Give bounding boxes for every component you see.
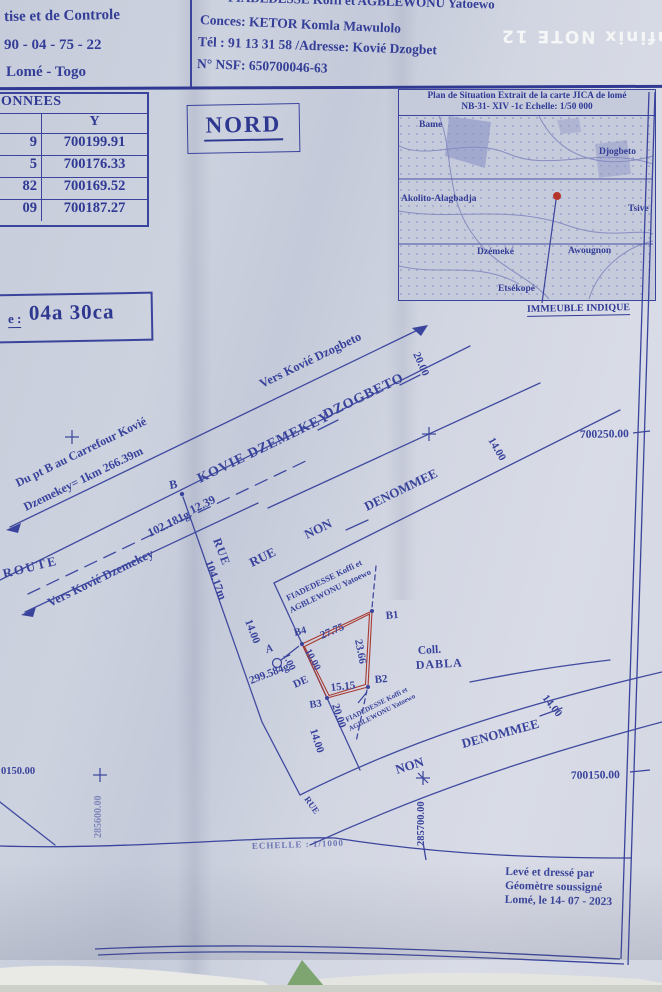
label-denommee-lower: DENOMMEE	[460, 716, 541, 751]
label-grid-east-right: 285700.00	[416, 801, 427, 846]
label-rue-small: RUE	[302, 794, 321, 815]
label-grid-north-left: 0150.00	[1, 766, 35, 777]
label-corner-b4: B4	[293, 625, 308, 639]
label-angle-b: 102.181g	[145, 507, 192, 539]
label-non-lower: NON	[393, 754, 426, 777]
label-width-14-b: 14.00	[485, 436, 508, 464]
label-rue-upper: RUE	[247, 544, 278, 570]
label-coll: Coll.	[418, 644, 442, 657]
location-marker-icon	[553, 192, 561, 200]
label-corner-b2: B2	[374, 673, 388, 686]
label-width-14-d: 14.00	[540, 692, 565, 719]
label-width-20-b: 20.00	[329, 702, 348, 730]
label-side-10-00: 10.00	[302, 647, 322, 672]
grid-cross-icon	[65, 427, 436, 785]
surveyor-note-line3: Lomé, le 14- 07 - 2023	[505, 893, 613, 909]
label-scale: ECHELLE : 1/1000	[252, 838, 344, 851]
label-point-a: A	[263, 642, 275, 656]
label-angle-a: 299.584g	[248, 661, 291, 687]
label-grid-east-left: 285600.00	[93, 796, 104, 839]
label-non-upper: NON	[302, 515, 335, 541]
label-point-b: B	[168, 477, 178, 492]
label-width-14-a: 14.00	[242, 618, 262, 646]
label-vers-dzemekey: Vers Kovié Dzemekey	[45, 546, 156, 610]
plan-drawing: Vers Kovié Dzogbeto KOVIE DZEMEKEY DZOGB…	[0, 0, 662, 992]
label-corner-b3: B3	[309, 698, 323, 711]
label-route: ROUTE	[1, 553, 59, 581]
label-side-23-66: 23.66	[352, 638, 369, 665]
label-road-kovie-dzemekey: KOVIE DZEMEKEY	[195, 409, 333, 486]
label-de: DE	[291, 674, 310, 691]
label-corner-b1: B1	[385, 609, 399, 622]
label-side-27-75: 27.75	[318, 621, 346, 642]
label-side-15-15: 15.15	[330, 679, 356, 694]
survey-plan-photo: tise et de Controle 90 - 04 - 75 - 22 Lo…	[0, 0, 662, 992]
label-width-14-c: 14.00	[307, 727, 326, 755]
label-grid-north-bottom: 700150.00	[571, 769, 620, 782]
map-pointer	[542, 192, 561, 303]
label-road-dzogbeto: DZOGBETO	[321, 371, 407, 423]
photo-background-bottom	[0, 960, 662, 992]
surveyor-note: Levé et dressé par Géomètre soussigné Lo…	[505, 865, 613, 909]
label-dabla: DABLA	[415, 656, 463, 672]
label-dim-12-39: 12.39	[187, 492, 217, 516]
label-grid-north-top: 700250.00	[580, 428, 629, 441]
